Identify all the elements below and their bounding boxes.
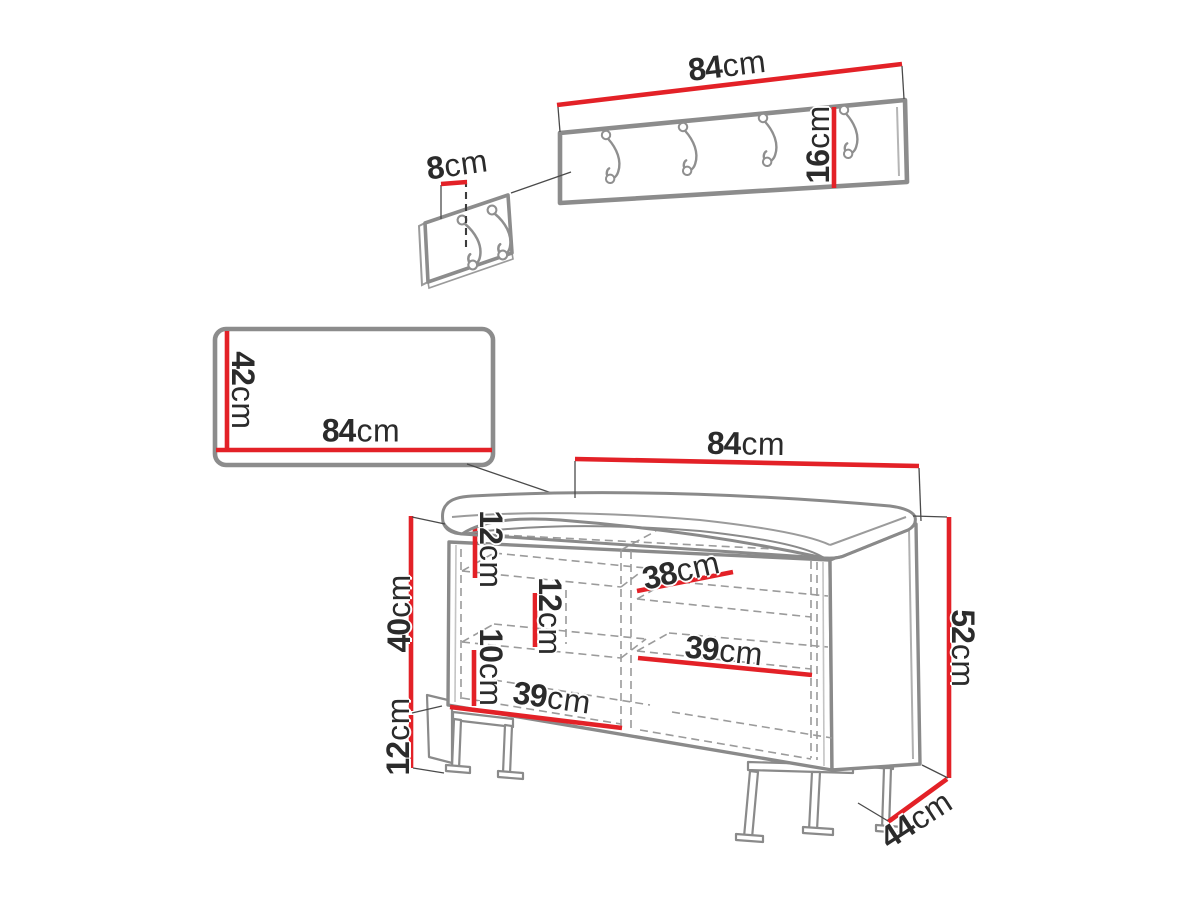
dim-label-bench-body-height: 40cm [383,574,415,652]
dim-label-bench-leg-height: 12cm [382,697,414,775]
dim-label-rack-height: 16cm [802,105,834,183]
diagram-canvas: 84cm 16cm 8cm 42cm 84cm 84cm 52cm 44cm 4… [0,0,1200,900]
dim-label-mirror-height: 42cm [227,351,259,429]
dim-label-hook-offset: 8cm [424,144,489,184]
bench-side-face [830,524,920,770]
wall-rack-drawing [560,100,907,203]
dim-label-shelf-gap-middle: 12cm [534,577,566,655]
dim-label-bench-height: 52cm [947,609,979,687]
dim-label-shelf-gap-bottom: 10cm [475,628,507,706]
dim-label-bench-width: 84cm [707,427,786,460]
dim-label-compartment-right-width: 39cm [683,630,764,670]
furniture-line-art [0,0,1200,900]
dim-label-rack-width: 84cm [686,45,767,86]
dim-label-mirror-width: 84cm [322,414,400,446]
hook-detail-panel-drawing [419,172,571,288]
dim-label-shelf-gap-top: 12cm [475,510,507,588]
